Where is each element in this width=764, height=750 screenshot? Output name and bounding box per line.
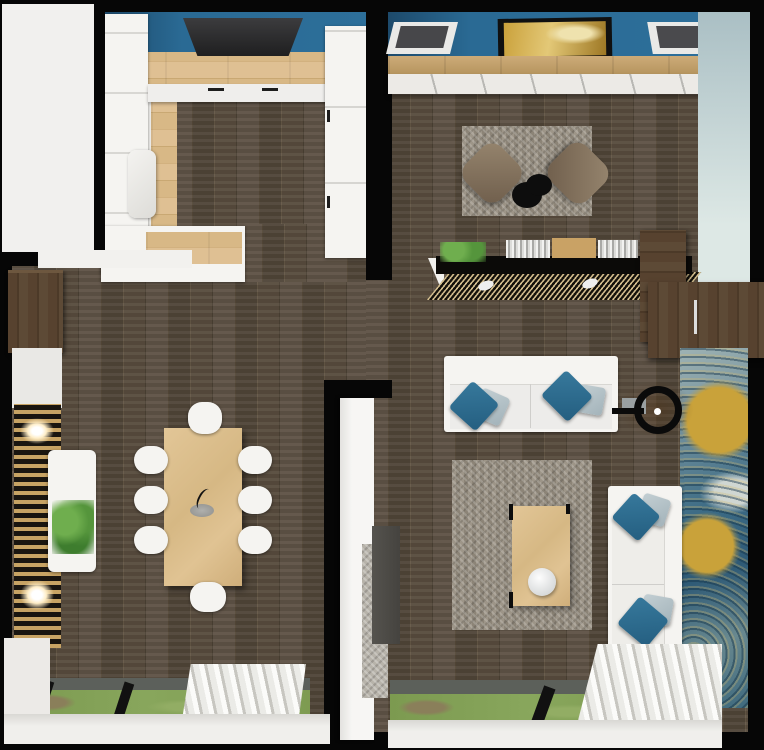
range-hood[interactable] xyxy=(183,18,303,56)
cabinet-handle xyxy=(327,196,330,208)
tv-unit[interactable] xyxy=(372,526,400,644)
long-sideboard[interactable] xyxy=(388,74,720,94)
dining-chair[interactable] xyxy=(134,486,168,514)
wall-sconce[interactable] xyxy=(20,418,54,444)
teal-side-wall xyxy=(698,12,750,316)
open-door[interactable] xyxy=(648,282,764,358)
window-sill xyxy=(388,720,722,748)
kitchen-floor xyxy=(325,254,366,282)
dining-chair[interactable] xyxy=(188,402,222,434)
side-table[interactable] xyxy=(526,174,552,196)
dining-chair[interactable] xyxy=(134,446,168,474)
books[interactable] xyxy=(598,240,638,258)
console-plants[interactable] xyxy=(440,242,486,262)
hall-wall-top xyxy=(38,250,192,268)
kitchen-sink[interactable] xyxy=(128,150,156,218)
dining-chair[interactable] xyxy=(190,582,226,612)
wall-sconce[interactable] xyxy=(20,580,54,610)
pleated-curtain[interactable] xyxy=(182,664,306,720)
cabinet-handle xyxy=(327,110,330,122)
partition-wall xyxy=(324,380,392,398)
coffee-table-bracket xyxy=(509,592,513,608)
coffee-table-bracket xyxy=(566,504,570,514)
kitchen-floor xyxy=(240,224,330,282)
sofa-seam xyxy=(612,584,664,585)
floor-plan-render xyxy=(0,0,764,750)
cabinet-handle xyxy=(262,88,278,91)
dining-chair[interactable] xyxy=(134,526,168,554)
dining-chair[interactable] xyxy=(238,446,272,474)
ceiling-light-panel xyxy=(656,26,704,48)
cabinet-run-top[interactable] xyxy=(148,84,330,102)
book-end-wood xyxy=(552,238,596,258)
cabinet-handle xyxy=(208,88,224,91)
tall-cabinet-column[interactable] xyxy=(325,26,366,258)
dining-chair[interactable] xyxy=(238,486,272,514)
clock-center xyxy=(654,408,661,415)
exterior-area xyxy=(2,4,94,252)
ceiling-light-panel xyxy=(395,26,448,48)
plant[interactable] xyxy=(52,500,94,554)
wall-shelf xyxy=(388,56,720,74)
hall-wall xyxy=(12,348,62,408)
painting-art xyxy=(504,21,607,57)
decor-bowl[interactable] xyxy=(528,568,556,596)
sofa-seam xyxy=(530,384,531,428)
entry-wardrobe[interactable] xyxy=(8,270,63,353)
dining-chair[interactable] xyxy=(238,526,272,554)
window-sill xyxy=(4,714,330,744)
books[interactable] xyxy=(506,240,550,258)
coffee-table-bracket xyxy=(509,504,513,520)
door-handle xyxy=(694,300,697,334)
